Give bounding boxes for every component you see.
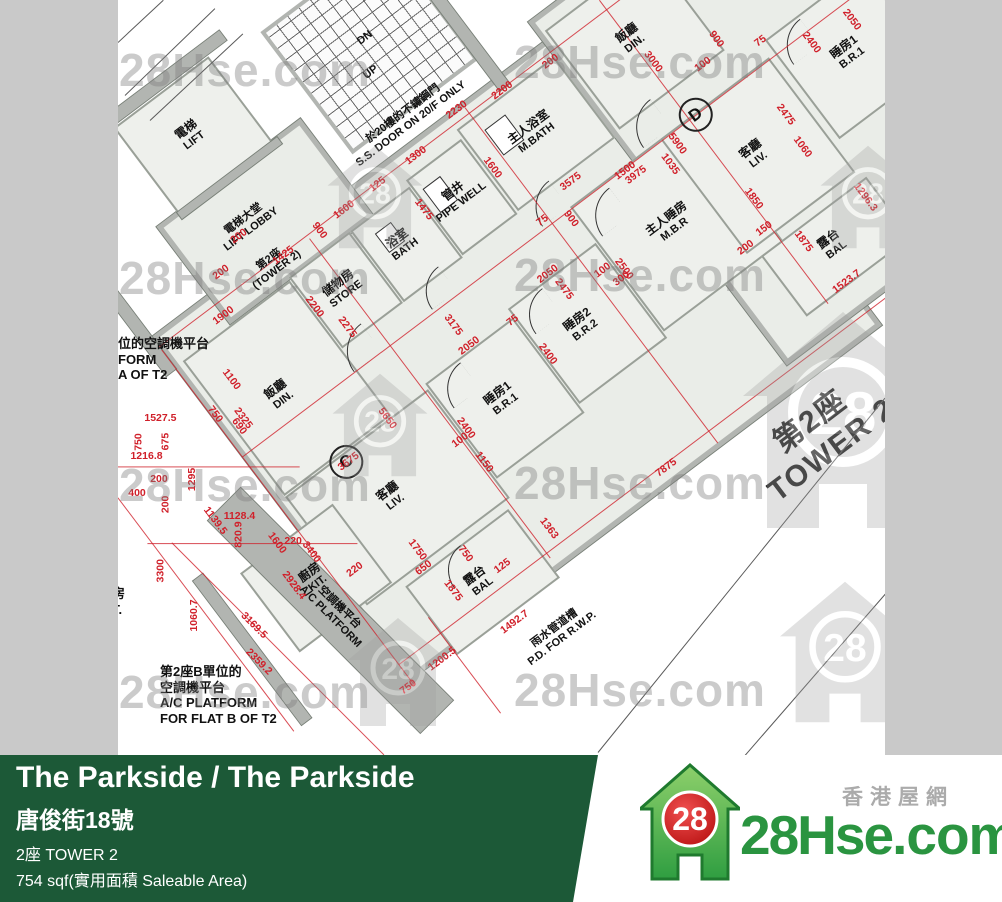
page-title: The Parkside / The Parkside — [16, 761, 415, 795]
dimension-value: 820.9 — [232, 521, 244, 547]
address-subtitle: 唐俊街18號 — [16, 801, 134, 835]
watermark-text: 28Hse.com — [119, 251, 371, 305]
dimension-value: 750 — [132, 433, 144, 451]
svg-text:28: 28 — [359, 179, 391, 211]
dimension-value: 3300 — [154, 559, 166, 582]
28hse-logo: 28 香港屋網 28Hse.com — [640, 763, 1000, 898]
dimension-value: 1060.7 — [188, 599, 200, 631]
watermark-text: 28Hse.com — [514, 248, 766, 302]
dimension-value: 220 — [284, 535, 302, 547]
svg-text:28: 28 — [672, 801, 708, 837]
dimension-value: 675 — [160, 433, 172, 451]
watermark-house-icon: 28 — [348, 616, 448, 728]
dimension-value: 1527.5 — [144, 412, 176, 424]
tower-label: 2座 TOWER 2 — [16, 841, 118, 865]
svg-text:28: 28 — [364, 407, 396, 439]
watermark-house-icon: 28 — [328, 144, 423, 250]
svg-text:28: 28 — [823, 627, 866, 670]
watermark-text: 28Hse.com — [514, 663, 766, 717]
dimension-line — [147, 543, 357, 544]
watermark-house-icon: 28 — [821, 144, 886, 250]
watermark-house-icon: 28 — [333, 372, 428, 478]
listing-footer: The Parkside / The Parkside 唐俊街18號 2座 TO… — [0, 755, 1002, 902]
screenshot-stage: 電梯LIFT飯廳DIN.儲物房STORE浴室BATH管井PIPE WELL主人浴… — [0, 0, 1002, 902]
floor-plan-paper: 電梯LIFT飯廳DIN.儲物房STORE浴室BATH管井PIPE WELL主人浴… — [118, 0, 885, 755]
watermark-house-icon: 28 — [780, 579, 885, 725]
watermark-text: 28Hse.com — [119, 43, 371, 97]
saleable-area-label: 754 sqf(實用面積 Saleable Area) — [16, 867, 247, 891]
watermark-house-icon: 28 — [743, 308, 885, 532]
svg-text:28: 28 — [381, 653, 414, 686]
svg-text:28: 28 — [852, 179, 884, 211]
svg-text:28: 28 — [810, 380, 877, 447]
logo-wordmark: 28Hse.com — [740, 803, 1002, 867]
annotation-edge-cut: 房T. — [118, 586, 125, 617]
annotation-left-cut: 位的空調機平台FORMA OF T2 — [118, 336, 209, 383]
annotation-pd-rwp: 雨水管道槽P.D. FOR R.W.P. — [518, 599, 599, 669]
watermark-text: 28Hse.com — [514, 35, 766, 89]
watermark-text: 28Hse.com — [514, 456, 766, 510]
28hse-house-icon: 28 — [640, 763, 740, 881]
watermark-text: 28Hse.com — [119, 665, 371, 719]
